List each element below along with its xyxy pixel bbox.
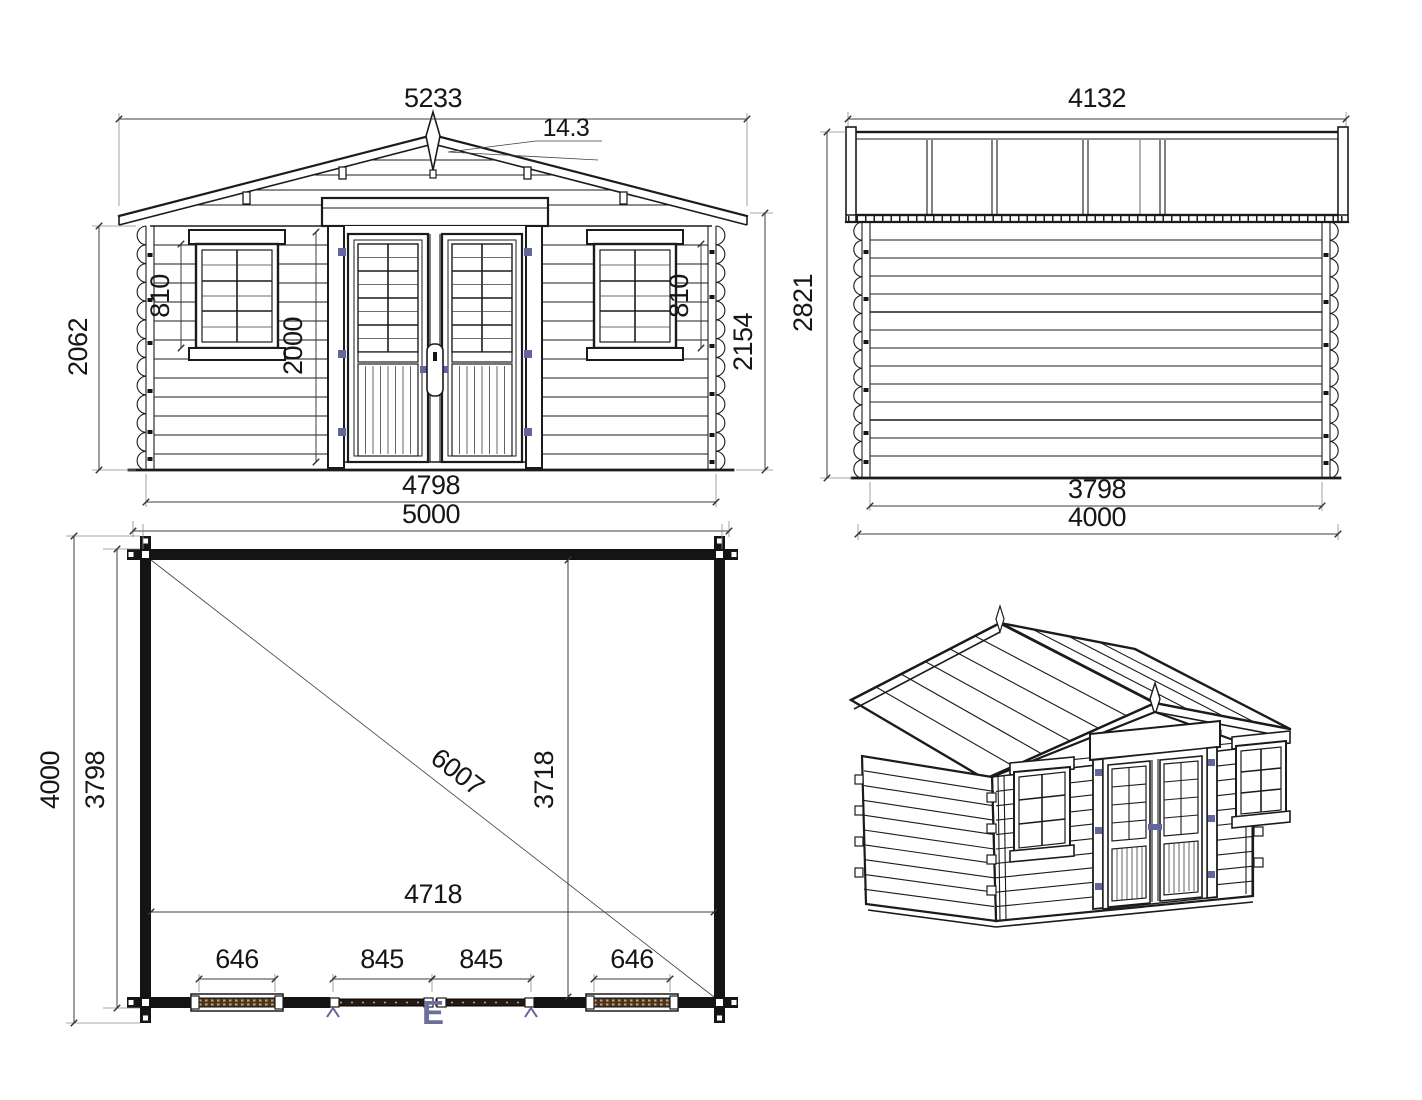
iso-double-door (1090, 721, 1220, 909)
plan-door: E (327, 993, 537, 1031)
drawing-canvas: 5233 14.3 2062 810 2000 810 2154 4798 (0, 0, 1422, 1100)
dim-plan-window-right-width: 646 (610, 944, 654, 974)
dim-plan-diagonal: 6007 (425, 742, 489, 801)
blueprint-page: 5233 14.3 2062 810 2000 810 2154 4798 (0, 0, 1422, 1100)
side-roof (846, 127, 1348, 222)
dim-side-overall-length: 4000 (1068, 502, 1126, 532)
dim-front-roof-angle: 14.3 (543, 114, 590, 142)
dim-front-window-left-height: 810 (145, 274, 175, 318)
plan-window-left (191, 994, 283, 1011)
plan-entry-marker: E (422, 994, 444, 1031)
dim-front-door-height: 2000 (278, 317, 308, 375)
dim-plan-overall-depth: 4000 (35, 751, 65, 809)
dim-front-wall-height: 2062 (63, 318, 93, 376)
front-window-left (189, 230, 285, 360)
front-double-door (322, 198, 548, 468)
dim-front-overall-width: 5000 (402, 499, 460, 529)
dim-plan-door-left-width: 845 (360, 944, 404, 974)
plan-dimensions: 3798 4000 646 845 845 646 (35, 524, 722, 1023)
iso-door-handle (1148, 824, 1162, 830)
side-wall (852, 222, 1340, 478)
side-elevation-view: 4132 2821 3798 4000 (788, 83, 1348, 540)
dim-plan-wall-depth: 3798 (80, 751, 110, 809)
dim-side-wall-length: 3798 (1068, 474, 1126, 504)
front-elevation-view: 5233 14.3 2062 810 2000 810 2154 4798 (63, 83, 773, 537)
dim-front-window-right-height: 810 (664, 274, 694, 318)
floor-plan-view: 6007 3718 4718 E (35, 524, 738, 1031)
dim-plan-window-left-width: 646 (215, 944, 259, 974)
dim-plan-interior-depth: 3718 (529, 751, 559, 809)
iso-window-right (1232, 731, 1290, 828)
dim-front-wall-width: 4798 (402, 470, 460, 500)
roof-finial (426, 112, 440, 178)
dim-side-total-height: 2821 (788, 274, 818, 332)
dim-side-roof-length: 4132 (1068, 83, 1126, 113)
door-handle-plate (427, 344, 443, 396)
dim-plan-interior-width: 4718 (404, 879, 462, 909)
iso-window-left (1010, 757, 1074, 862)
plan-interior-lines: 6007 3718 4718 (151, 560, 714, 997)
isometric-view (851, 606, 1290, 927)
dim-plan-door-right-width: 845 (459, 944, 503, 974)
dim-front-roof-width: 5233 (404, 83, 462, 113)
dim-front-total-height: 2154 (728, 312, 758, 371)
plan-window-right (586, 994, 678, 1011)
